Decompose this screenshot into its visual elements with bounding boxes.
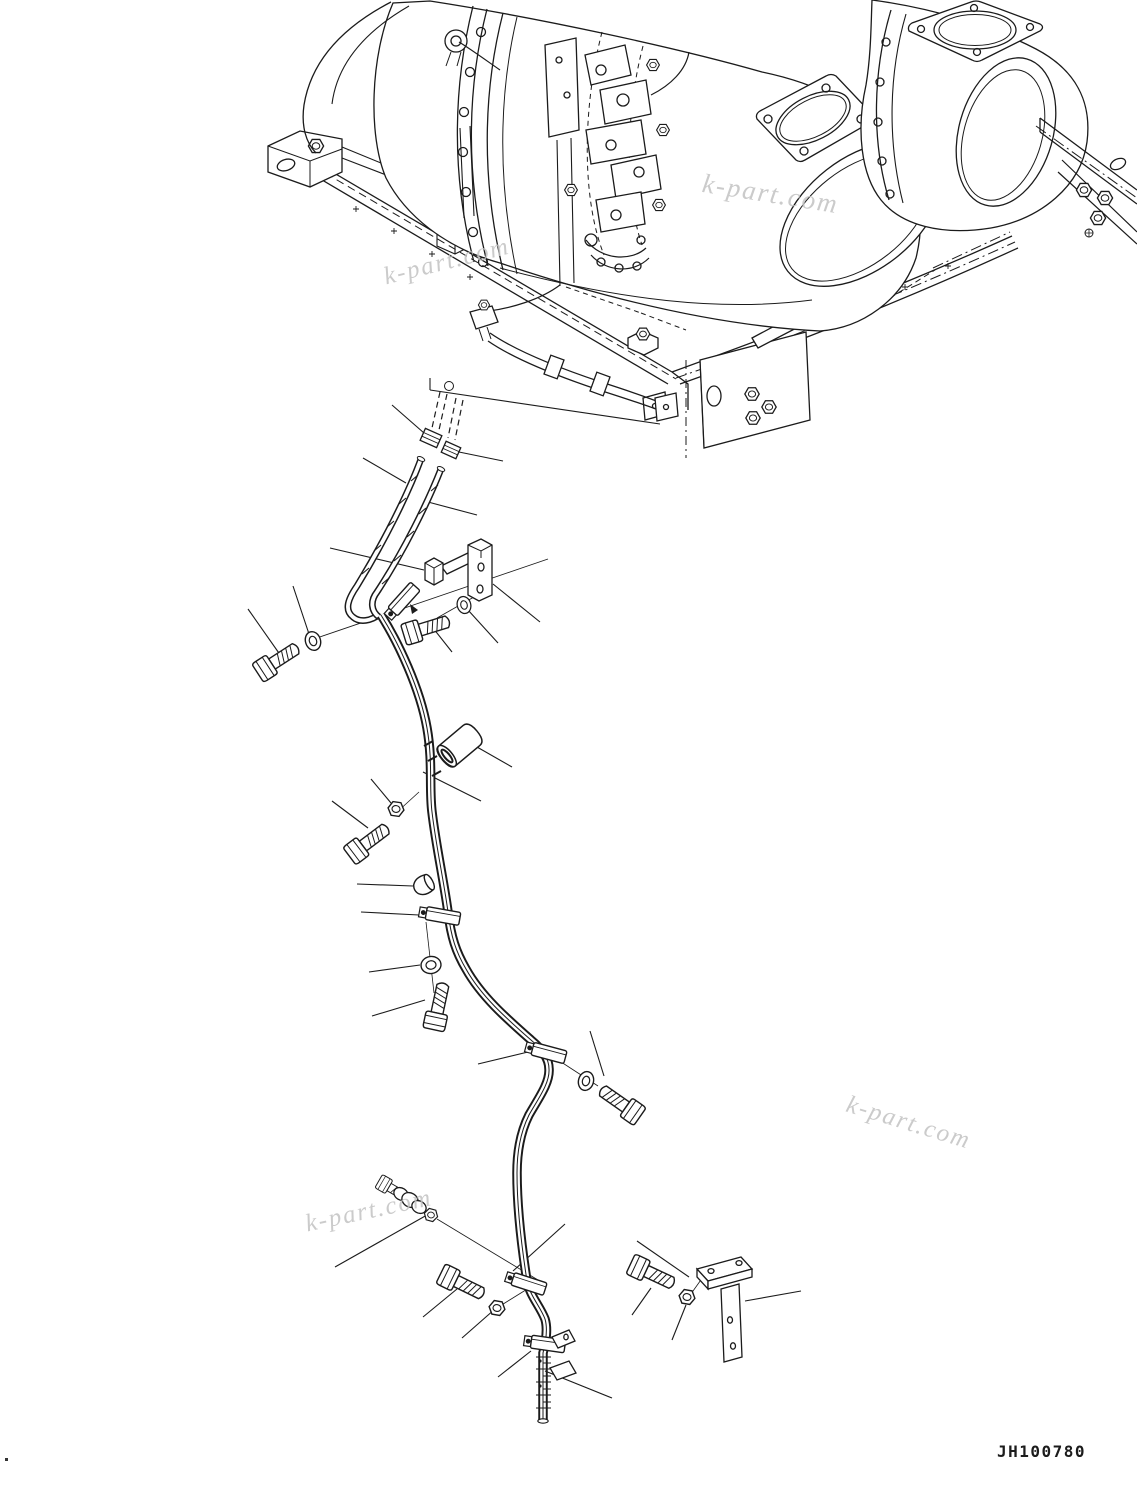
washer-icon <box>576 1070 595 1092</box>
catalog-page: k-part.com k-part.com k-part.com k-part.… <box>0 0 1137 1491</box>
t-bracket <box>697 1257 752 1362</box>
nut-icon <box>387 801 405 817</box>
tube-stub-connectors <box>432 382 463 441</box>
washer-icon <box>420 955 442 975</box>
muffler-canister-right <box>861 0 1088 231</box>
hex-bolt-icon <box>401 611 453 646</box>
drawing-number: JH100780 <box>997 1442 1086 1461</box>
parts-diagram-canvas <box>0 0 1137 1491</box>
cap-nut-icon <box>410 872 436 898</box>
tube-clamp-icon <box>418 905 461 925</box>
l-bracket <box>425 539 492 601</box>
machinery-overview <box>268 0 1137 458</box>
hex-bolt-icon <box>343 819 394 865</box>
tube-clamp-icon <box>383 582 420 621</box>
alignment-lines <box>396 593 703 1306</box>
tube-union-fittings <box>420 428 461 458</box>
spacer <box>434 721 485 770</box>
hex-bolt-icon <box>252 638 304 682</box>
hex-bolt-icon <box>626 1254 678 1294</box>
hex-bolt-icon <box>423 981 454 1032</box>
nut-icon <box>678 1289 696 1305</box>
union-fitting-icon <box>441 441 460 458</box>
nut-icon <box>488 1300 506 1316</box>
washer-icon <box>303 630 323 653</box>
page-artifact-dot <box>5 1458 8 1461</box>
flag-marker <box>545 1361 612 1398</box>
tube-routing-detail <box>248 405 801 1423</box>
tube-clamps <box>383 582 575 1353</box>
hex-bolt-icon <box>436 1264 488 1305</box>
hex-bolt-icon <box>595 1080 647 1125</box>
union-fitting-icon <box>420 428 442 447</box>
